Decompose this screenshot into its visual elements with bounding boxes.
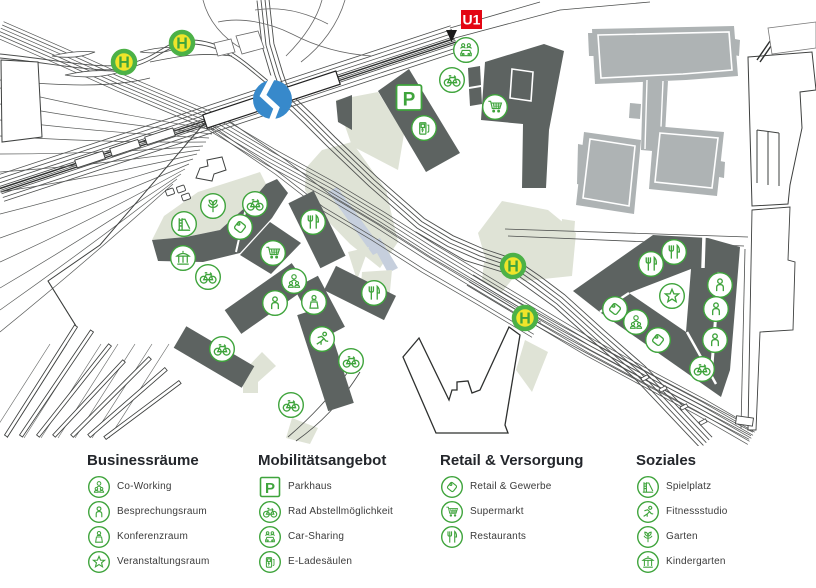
svg-text:H: H [118,55,130,72]
svg-text:H: H [176,36,188,53]
svg-text:U1: U1 [463,12,481,28]
svg-text:H: H [507,259,519,276]
svg-text:P: P [403,90,416,111]
svg-text:P: P [265,480,275,497]
svg-text:H: H [519,311,531,328]
